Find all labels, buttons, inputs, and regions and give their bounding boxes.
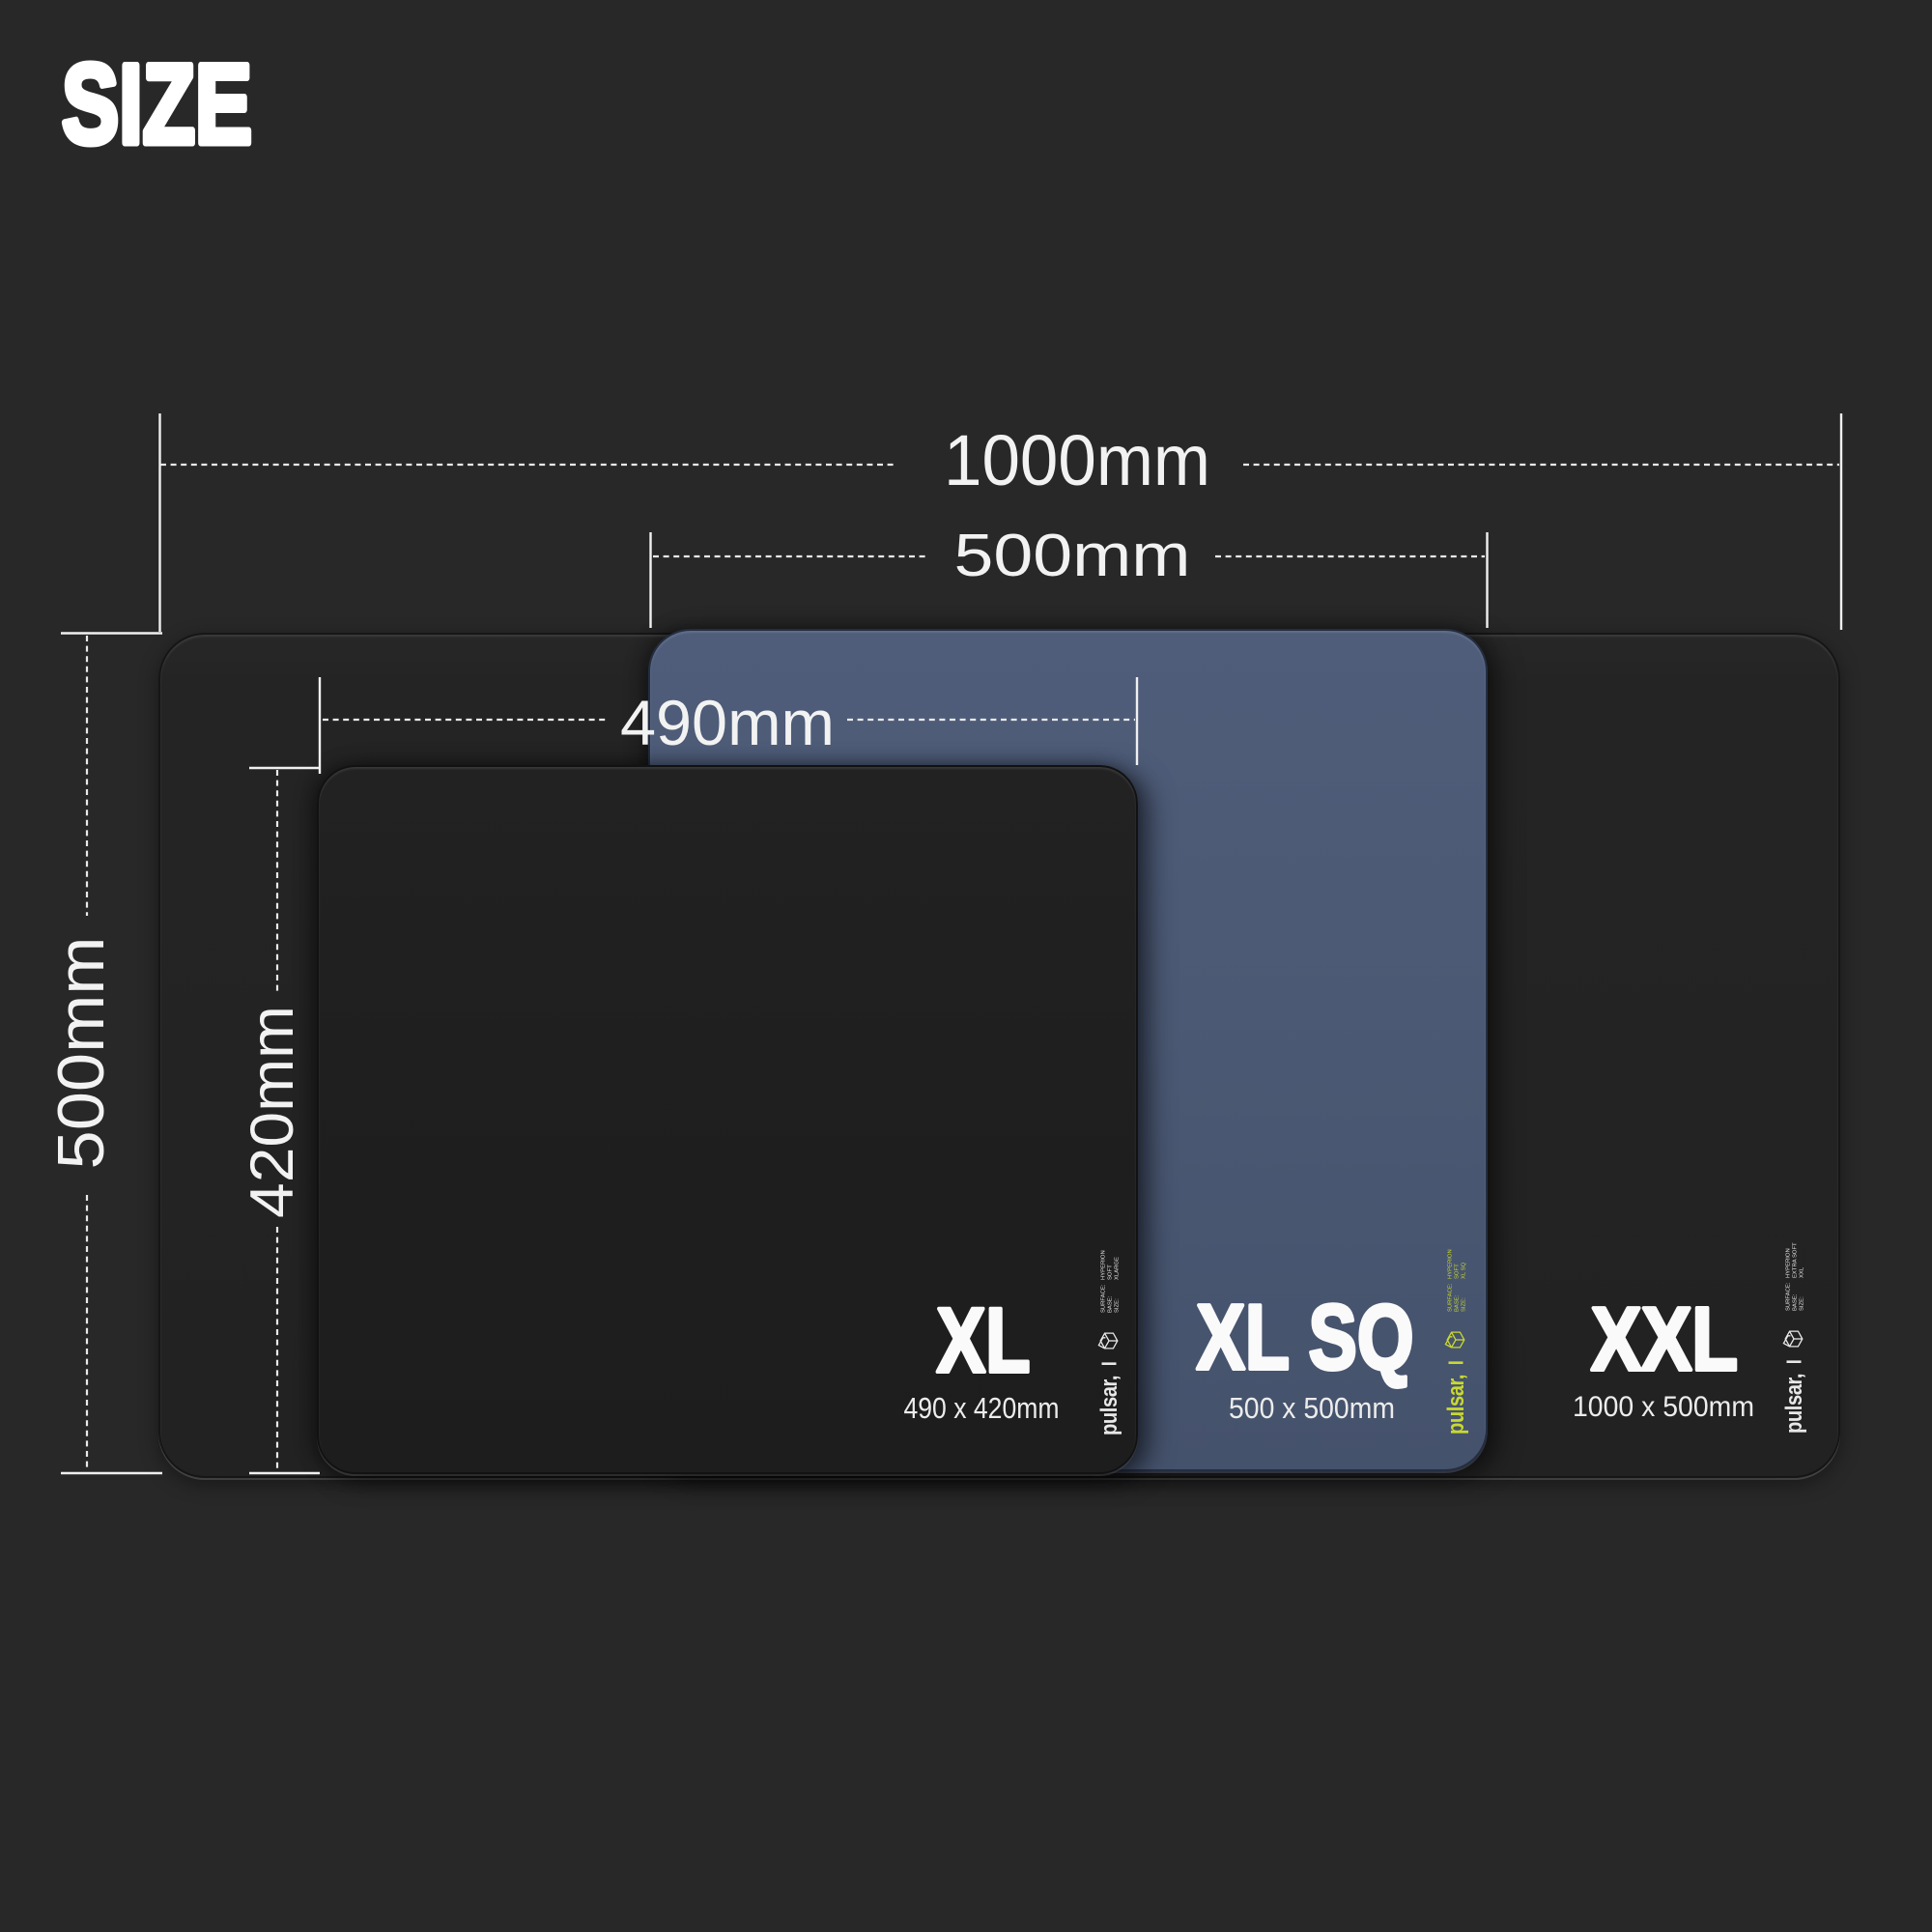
svg-text:XXL: XXL: [1799, 1266, 1804, 1278]
svg-text:490 x 420mm: 490 x 420mm: [904, 1391, 1060, 1425]
svg-text:XL SQ: XL SQ: [1461, 1262, 1466, 1279]
svg-text:EXTRA SOFT: EXTRA SOFT: [1792, 1242, 1798, 1278]
svg-text:500mm: 500mm: [954, 523, 1191, 589]
svg-text:BASE:: BASE:: [1792, 1293, 1798, 1311]
svg-text:420mm: 420mm: [239, 1006, 306, 1218]
svg-text:SURFACE:: SURFACE:: [1447, 1283, 1453, 1312]
svg-text:SOFT: SOFT: [1107, 1264, 1113, 1280]
svg-text:SIZE:: SIZE:: [1461, 1297, 1466, 1312]
svg-text:500 x 500mm: 500 x 500mm: [1229, 1391, 1395, 1425]
svg-text:SURFACE:: SURFACE:: [1100, 1284, 1106, 1313]
svg-text:XL SQ: XL SQ: [1197, 1286, 1414, 1389]
svg-text:HYPERION: HYPERION: [1100, 1250, 1106, 1280]
svg-text:pulsar,: pulsar,: [1096, 1376, 1122, 1435]
svg-text:pulsar,: pulsar,: [1781, 1374, 1807, 1434]
svg-text:XLARGE: XLARGE: [1114, 1257, 1120, 1280]
svg-text:HYPERION: HYPERION: [1785, 1248, 1791, 1278]
svg-text:XL: XL: [937, 1290, 1031, 1392]
svg-text:SOFT: SOFT: [1454, 1264, 1460, 1279]
svg-text:1000 x 500mm: 1000 x 500mm: [1573, 1391, 1754, 1423]
svg-text:SIZE: SIZE: [62, 41, 252, 167]
svg-text:SURFACE:: SURFACE:: [1785, 1282, 1791, 1311]
svg-text:HYPERION: HYPERION: [1447, 1249, 1453, 1279]
svg-text:BASE:: BASE:: [1454, 1294, 1460, 1312]
svg-text:BASE:: BASE:: [1107, 1295, 1113, 1313]
svg-text:pulsar,: pulsar,: [1443, 1375, 1469, 1435]
svg-text:SIZE:: SIZE:: [1799, 1296, 1804, 1311]
svg-text:500mm: 500mm: [44, 937, 118, 1170]
svg-text:SIZE:: SIZE:: [1114, 1298, 1120, 1313]
svg-text:1000mm: 1000mm: [944, 420, 1210, 500]
svg-text:490mm: 490mm: [620, 687, 835, 758]
svg-text:XXL: XXL: [1591, 1289, 1738, 1389]
